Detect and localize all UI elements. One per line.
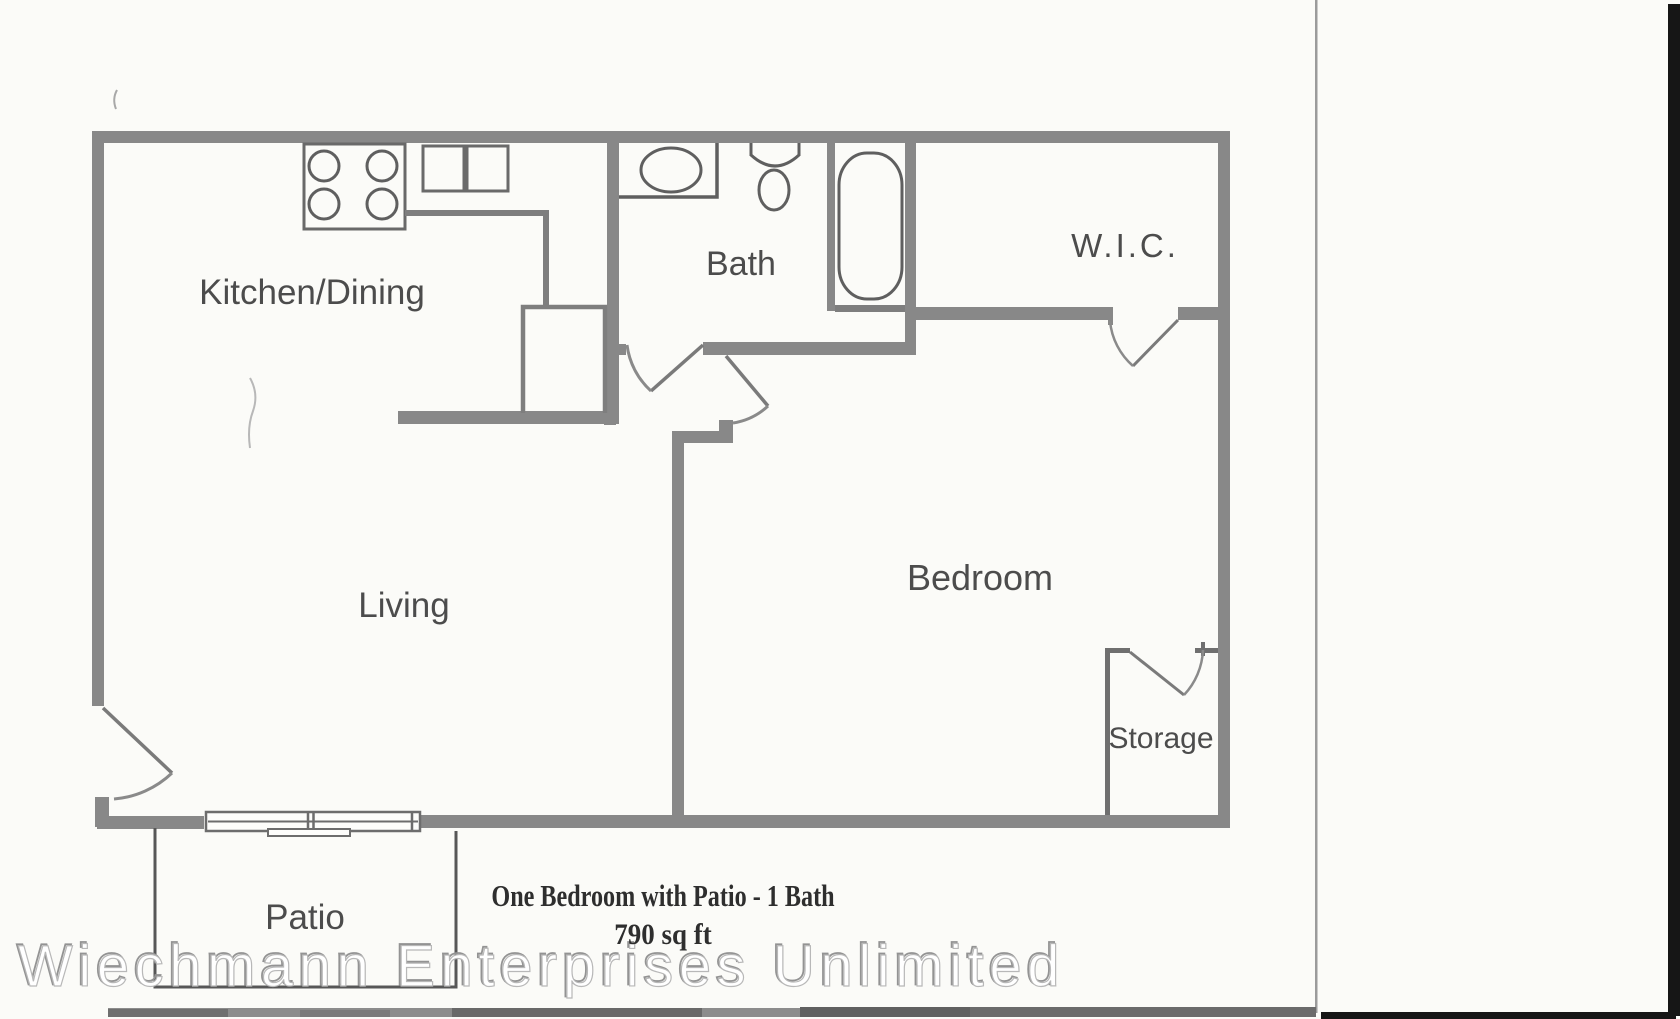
svg-text:790 sq ft: 790 sq ft	[614, 919, 712, 952]
svg-text:Patio: Patio	[265, 898, 345, 937]
svg-text:Bath: Bath	[706, 245, 776, 283]
svg-text:Kitchen/Dining: Kitchen/Dining	[199, 273, 425, 312]
svg-text:Bedroom: Bedroom	[907, 557, 1053, 598]
svg-text:Living: Living	[358, 586, 449, 625]
svg-text:Wiechmann Enterprises Unlimite: Wiechmann Enterprises Unlimited	[18, 934, 1065, 999]
svg-text:One Bedroom with Patio - 1 Bat: One Bedroom with Patio - 1 Bath	[491, 879, 835, 914]
svg-text:Storage: Storage	[1108, 722, 1213, 755]
svg-text:W.I.C.: W.I.C.	[1071, 227, 1179, 264]
